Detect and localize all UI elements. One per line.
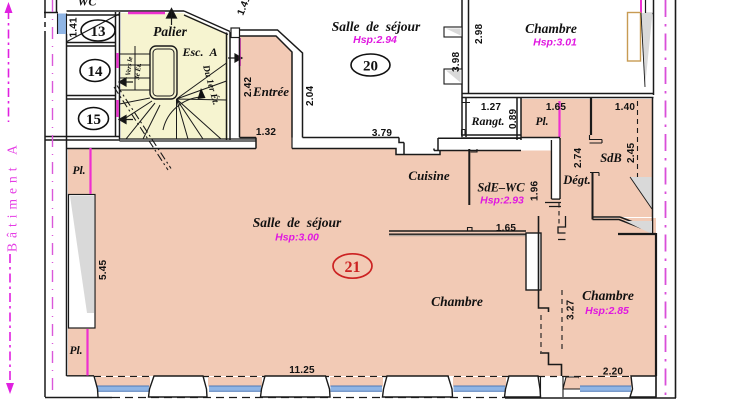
svg-text:SdB: SdB — [600, 151, 622, 165]
svg-text:Salle de séjour: Salle de séjour — [253, 215, 342, 230]
svg-text:2.20: 2.20 — [603, 367, 624, 378]
svg-text:3.98: 3.98 — [451, 51, 462, 72]
svg-text:Hsp:3.01: Hsp:3.01 — [533, 37, 577, 49]
svg-text:Hsp:3.00: Hsp:3.00 — [275, 232, 319, 244]
svg-text:1.40: 1.40 — [615, 102, 636, 113]
svg-text:Hsp:2.94: Hsp:2.94 — [353, 34, 397, 46]
svg-text:11.25: 11.25 — [289, 365, 315, 376]
svg-text:21: 21 — [345, 259, 361, 276]
svg-text:20: 20 — [363, 59, 378, 75]
svg-text:1.41: 1.41 — [69, 17, 80, 38]
svg-text:Chambre: Chambre — [431, 294, 483, 309]
svg-text:Hsp:2.85: Hsp:2.85 — [585, 305, 629, 317]
svg-text:Chambre: Chambre — [582, 288, 634, 303]
svg-text:2.04: 2.04 — [305, 85, 316, 106]
svg-text:1.27: 1.27 — [481, 102, 502, 113]
svg-text:2.42: 2.42 — [243, 76, 254, 97]
svg-text:3.79: 3.79 — [372, 128, 393, 139]
svg-text:0.89: 0.89 — [508, 108, 519, 129]
svg-text:Pl.: Pl. — [69, 345, 82, 357]
svg-text:13: 13 — [91, 24, 106, 40]
svg-text:SdE–WC: SdE–WC — [477, 181, 525, 195]
svg-text:Hsp:2.93: Hsp:2.93 — [480, 195, 524, 207]
svg-text:Entrée: Entrée — [252, 84, 289, 99]
svg-text:5.45: 5.45 — [98, 259, 109, 280]
svg-text:Salle de séjour: Salle de séjour — [332, 19, 421, 34]
svg-text:1.96: 1.96 — [530, 180, 541, 201]
svg-text:15: 15 — [86, 112, 101, 128]
svg-text:WC: WC — [78, 0, 98, 9]
svg-text:Cuisine: Cuisine — [408, 168, 449, 183]
svg-text:2.74: 2.74 — [573, 147, 584, 168]
svg-text:Pl.: Pl. — [72, 165, 85, 177]
svg-text:Esc. A: Esc. A — [181, 45, 217, 59]
svg-text:2.98: 2.98 — [474, 23, 485, 44]
svg-text:Rangt.: Rangt. — [470, 114, 504, 128]
svg-text:Chambre: Chambre — [525, 21, 577, 36]
svg-text:Dégt.: Dégt. — [562, 173, 590, 187]
svg-text:1.32: 1.32 — [256, 127, 277, 138]
svg-text:Pl.: Pl. — [535, 116, 548, 128]
svg-text:1.65: 1.65 — [496, 223, 517, 234]
svg-text:1.65: 1.65 — [546, 102, 567, 113]
svg-text:2.45: 2.45 — [626, 142, 637, 163]
svg-text:Bâtiment A: Bâtiment A — [5, 140, 20, 252]
svg-text:3.27: 3.27 — [566, 299, 577, 320]
svg-text:Palier: Palier — [153, 24, 187, 39]
svg-text:14: 14 — [88, 64, 104, 80]
